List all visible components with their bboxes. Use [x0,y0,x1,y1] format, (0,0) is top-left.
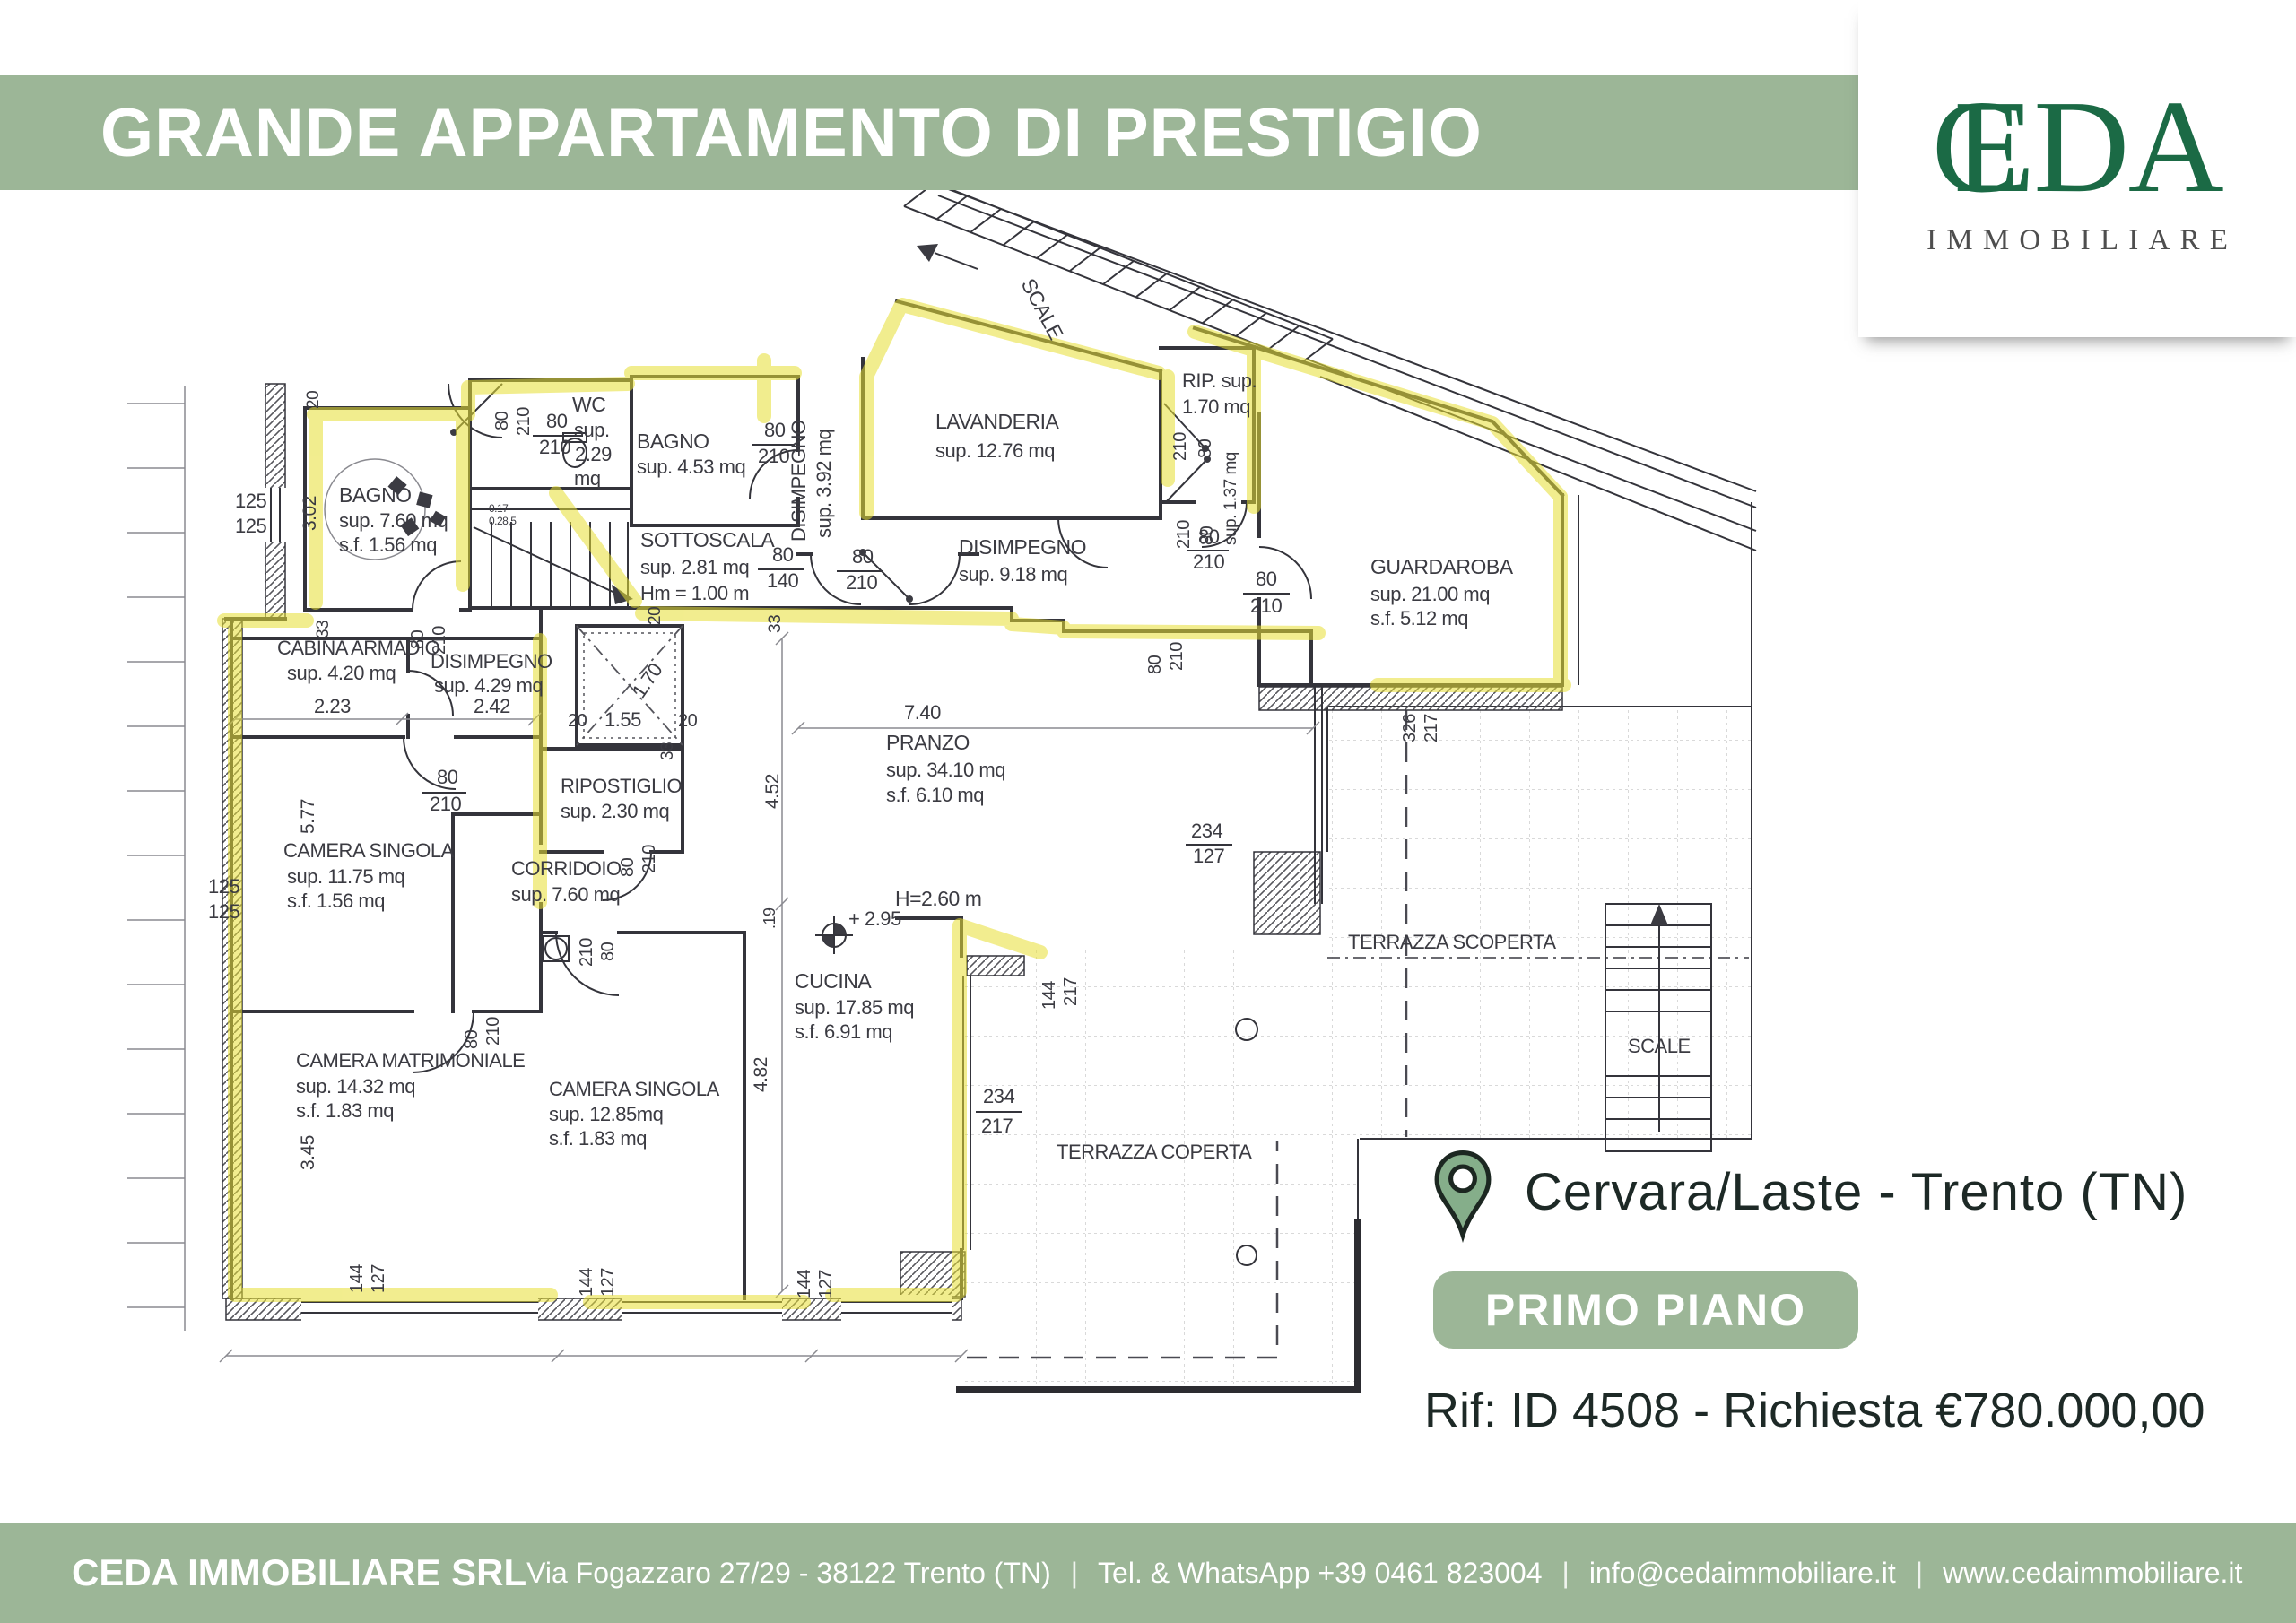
plan-label: 33 [658,742,677,760]
plan-label: 210 [1193,551,1224,573]
plan-label: RIPOSTIGLIO [561,775,682,797]
plan-label: sup. 14.32 mq [296,1075,415,1098]
plan-label: s.f. 6.91 mq [795,1020,892,1043]
plan-label: H=2.60 m [895,887,981,910]
plan-label: BAGNO [637,430,709,453]
plan-label: DISIMPEGNO [959,535,1086,559]
plan-label: 1.70 [628,659,667,702]
plan-label: 210 [430,793,461,815]
plan-label: 80 [1256,568,1277,590]
plan-label: PRANZO [886,731,970,754]
plan-label: s.f. 1.56 mq [339,534,437,556]
plan-label: s.f. 5.12 mq [1370,607,1468,629]
plan-label: sup. 1.37 mq [1222,452,1240,545]
plan-label: 234 [1191,820,1222,842]
plan-label: 210 [846,571,877,594]
page-title: GRANDE APPARTAMENTO DI PRESTIGIO [100,94,1483,172]
footer-address: Via Fogazzaro 27/29 - 38122 Trento (TN) [526,1557,1051,1590]
plan-label: 80 [408,629,428,649]
floor-badge: PRIMO PIANO [1433,1271,1858,1349]
plan-label: 3.02 [300,496,320,531]
plan-label: CAMERA MATRIMONIALE [296,1049,525,1072]
plan-label: 20 [646,607,665,625]
plan-label: 326 [1400,714,1420,742]
footer-separator: | [1916,1557,1923,1590]
plan-label: 80 [598,942,618,961]
plan-label: BAGNO [339,483,412,507]
plan-label: CAMERA SINGOLA [549,1078,720,1100]
footer-email: info@cedaimmobiliare.it [1589,1557,1896,1590]
plan-label: sup. 9.18 mq [959,563,1067,586]
stairs-top [904,183,1333,362]
location-text: Cervara/Laste - Trento (TN) [1525,1162,2187,1222]
plan-label: 210 [1174,520,1194,549]
plan-label: 210 [1170,432,1190,461]
footer-separator: | [1071,1557,1078,1590]
plan-label: 0.17 [489,502,509,515]
plan-label: 80 [1198,525,1220,548]
plan-label: 7.40 [904,701,941,724]
plan-label: 125 [208,900,239,923]
logo-wordmark: CEDA [1932,81,2222,213]
plan-label: GUARDAROBA [1370,555,1514,578]
plan-label: sup. 7.60 mq [511,883,620,906]
plan-label: 5.77 [298,799,318,834]
flyer-page: WCsup.2.29mq8021080210201251253.02BAGNOs… [0,0,2296,1623]
footer-website: www.cedaimmobiliare.it [1943,1557,2242,1590]
plan-label: s.f. 6.10 mq [886,784,984,806]
plan-label: sup. 34.10 mq [886,759,1005,781]
plan-label: 210 [483,1017,503,1046]
plan-label: 144 [795,1270,814,1298]
plan-label: 2.29 [575,443,612,465]
plan-label: RIP. sup. [1182,369,1257,392]
plan-label: 210 [639,845,659,873]
header-banner: GRANDE APPARTAMENTO DI PRESTIGIO [0,75,1858,190]
plan-label: 144 [1039,981,1059,1010]
floor-badge-label: PRIMO PIANO [1485,1284,1806,1336]
plan-label: LAVANDERIA [935,410,1059,433]
plan-label: sup. 3.92 mq [813,430,835,538]
plan-label: 210 [1167,642,1187,671]
plan-label: CUCINA [795,969,872,993]
plan-label: 1.70 mq [1182,395,1250,418]
footer-company: CEDA IMMOBILIARE SRL [72,1551,526,1594]
plan-label: 210 [514,407,534,436]
plan-label: 80 [437,766,458,788]
plan-label: 80 [1145,655,1165,674]
plan-label: s.f. 1.83 mq [549,1127,647,1150]
plan-label: 80 [764,419,786,441]
plan-label: 210 [430,626,449,655]
plan-label: 4.52 [762,774,783,809]
plan-label: 80 [462,1029,482,1049]
plan-label: 210 [1250,595,1282,617]
plan-label: CAMERA SINGOLA [283,839,455,862]
plan-label: sup. 21.00 mq [1370,583,1490,605]
plan-label: 0.28,5 [489,515,517,527]
plan-label: TERRAZZA SCOPERTA [1348,931,1556,953]
plan-label: 1.55 [604,708,641,731]
plan-label: 217 [1061,977,1081,1006]
plan-label: s.f. 1.83 mq [296,1099,394,1122]
plan-label: 140 [767,569,798,592]
plan-label: 144 [347,1264,367,1293]
plan-label: sup. 12.85mq [549,1103,663,1125]
logo-subtitle: IMMOBILIARE [1926,224,2238,257]
plan-label: 127 [369,1264,388,1293]
plan-label: SOTTOSCALA [640,528,775,551]
plan-label: 20 [304,391,323,409]
plan-label: sup. 4.53 mq [637,456,745,478]
plan-label: 144 [577,1268,596,1297]
plan-label: 127 [816,1270,836,1298]
plan-label: 80 [546,410,568,432]
plan-label: 20 [678,711,698,731]
plan-label: sup. 4.29 mq [434,674,543,697]
plan-label: 127 [1193,845,1224,867]
plan-label: sup. 2.30 mq [561,800,669,822]
location-pin-icon [1433,1148,1492,1243]
plan-label: 125 [235,515,266,537]
plan-label: sup. 11.75 mq [287,865,404,888]
plan-label: 80 [852,545,874,568]
footer-phone: Tel. & WhatsApp +39 0461 823004 [1098,1557,1542,1590]
plan-label: 3.45 [298,1135,318,1170]
plan-label: sup. 7.60 mq [339,509,448,532]
plan-label: 210 [539,436,570,458]
plan-label: 210 [577,938,596,967]
plan-label: 33 [766,615,785,633]
plan-label: 234 [983,1085,1014,1107]
plan-label: s.f. 1.56 mq [287,890,385,912]
plan-label: 210 [758,445,789,467]
plan-label: DISIMPEGNO [787,420,810,542]
plan-label: 217 [981,1115,1013,1137]
plan-label: 33 [314,621,333,638]
plan-label: 4.82 [751,1057,771,1092]
plan-label: + 2.95 [848,907,901,930]
footer-separator: | [1562,1557,1570,1590]
plan-label: WC [572,393,605,416]
plan-label: 217 [1422,714,1441,742]
plan-label: SCALE [1628,1035,1691,1057]
plan-label: 80 [1196,438,1215,458]
plan-label: sup. 2.81 mq [640,556,749,578]
plan-label: 2.42 [474,695,510,717]
plan-label: 80 [772,543,794,566]
plan-label: CORRIDOIO [511,857,622,880]
plan-label: 125 [208,875,239,898]
plan-label: TERRAZZA COPERTA [1057,1141,1252,1163]
plan-label: 127 [598,1268,618,1297]
plan-label: sup. 17.85 mq [795,996,914,1019]
plan-label: sup. 4.20 mq [287,662,396,684]
plan-label: sup. [574,419,610,441]
plan-label: Hm = 1.00 m [640,582,749,604]
agency-logo: CEDA IMMOBILIARE [1858,0,2296,337]
reference-price: Rif: ID 4508 - Richiesta €780.000,00 [1424,1383,2205,1438]
plan-label: 2.23 [314,695,351,717]
plan-label: .19 [761,907,778,929]
plan-label: mq [574,467,601,490]
footer-bar: CEDA IMMOBILIARE SRL Via Fogazzaro 27/29… [0,1523,2296,1623]
plan-label: 125 [235,490,266,512]
plan-label: 80 [492,411,512,430]
plan-label: sup. 12.76 mq [935,439,1055,462]
plan-label: 20 [568,711,587,731]
